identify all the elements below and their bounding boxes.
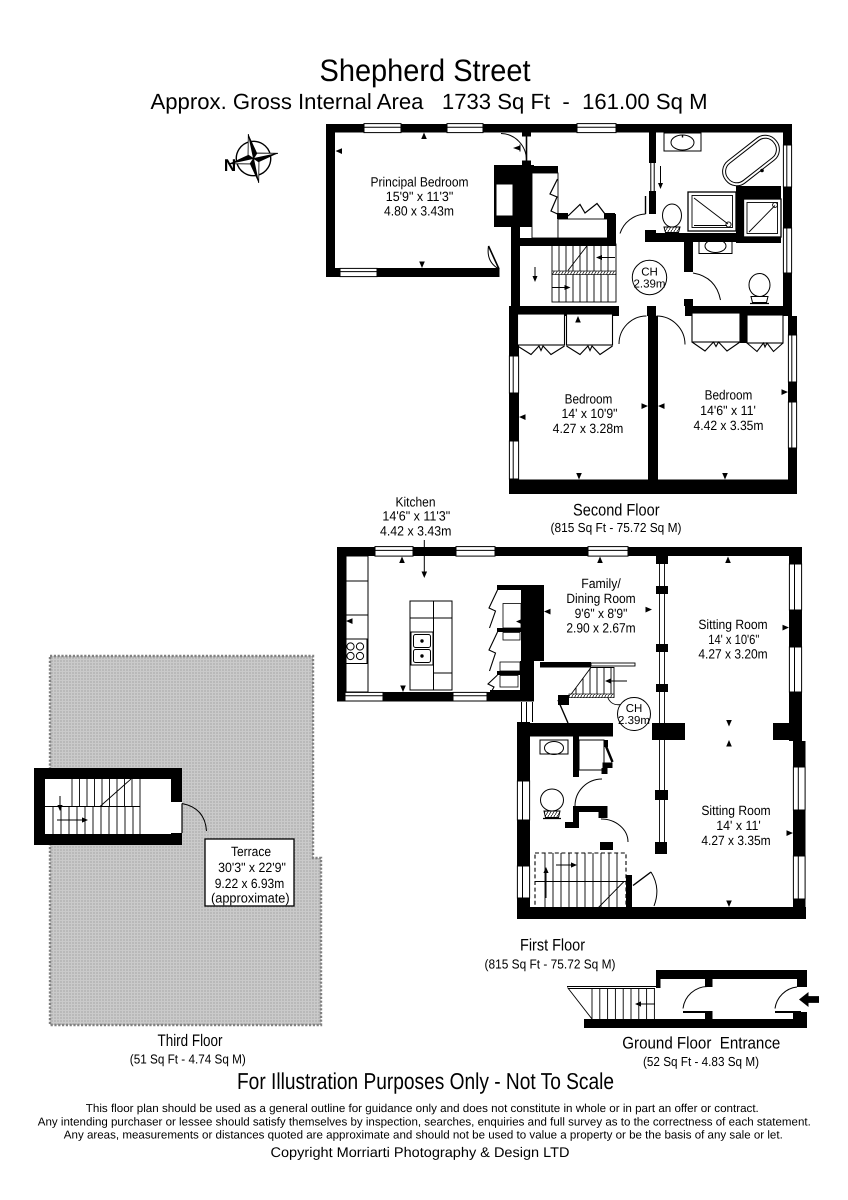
svg-text:For Illustration Purposes Only: For Illustration Purposes Only - Not To … [237, 1068, 614, 1094]
svg-text:Second Floor: Second Floor [573, 501, 660, 520]
svg-text:Principal Bedroom: Principal Bedroom [371, 175, 469, 190]
svg-text:Shepherd Street: Shepherd Street [320, 53, 531, 88]
svg-text:(approximate): (approximate) [211, 891, 290, 906]
svg-text:15'9" x 11'3": 15'9" x 11'3" [386, 189, 454, 204]
svg-text:Bedroom: Bedroom [705, 388, 753, 403]
svg-text:4.80 x 3.43m: 4.80 x 3.43m [384, 204, 454, 219]
svg-text:Third Floor: Third Floor [158, 1031, 223, 1050]
svg-text:2.90 x 2.67m: 2.90 x 2.67m [566, 621, 635, 636]
svg-text:9'6" x 8'9": 9'6" x 8'9" [575, 606, 628, 621]
svg-text:CH: CH [626, 703, 643, 715]
svg-text:Family/: Family/ [581, 576, 621, 591]
svg-text:4.42 x 3.43m: 4.42 x 3.43m [380, 524, 451, 539]
svg-text:14' x 11': 14' x 11' [716, 818, 761, 833]
svg-text:14'6" x 11'3": 14'6" x 11'3" [382, 509, 450, 524]
svg-text:(51 Sq Ft - 4.74 Sq M): (51 Sq Ft - 4.74 Sq M) [130, 1052, 246, 1067]
svg-text:Bedroom: Bedroom [565, 392, 613, 407]
svg-text:2.39m: 2.39m [634, 279, 666, 291]
svg-text:Dining Room: Dining Room [566, 591, 635, 606]
svg-text:(815 Sq Ft - 75.72 Sq M): (815 Sq Ft - 75.72 Sq M) [551, 520, 682, 535]
svg-text:CH: CH [641, 267, 658, 279]
svg-text:(815 Sq Ft - 75.72 Sq M): (815 Sq Ft - 75.72 Sq M) [485, 957, 616, 972]
svg-text:Copyright Morriarti Photograph: Copyright Morriarti Photography & Design… [271, 1144, 570, 1160]
svg-text:Sitting Room: Sitting Room [701, 803, 770, 818]
svg-text:30'3" x 22'9": 30'3" x 22'9" [218, 860, 286, 875]
svg-text:4.27 x 3.35m: 4.27 x 3.35m [701, 833, 770, 848]
svg-text:Kitchen: Kitchen [396, 495, 436, 510]
svg-text:14' x 10'6": 14' x 10'6" [708, 632, 759, 647]
svg-text:Any areas, measurements or dis: Any areas, measurements or distances quo… [64, 1130, 783, 1142]
svg-text:Ground Floor Entrance: Ground Floor Entrance [622, 1034, 780, 1053]
svg-text:9.22 x 6.93m: 9.22 x 6.93m [215, 876, 285, 891]
svg-text:Terrace: Terrace [231, 844, 271, 859]
svg-text:N: N [224, 156, 236, 175]
svg-text:First Floor: First Floor [520, 936, 585, 955]
svg-text:Sitting Room: Sitting Room [698, 617, 767, 632]
svg-text:14' x 10'9": 14' x 10'9" [562, 406, 618, 421]
svg-text:(52 Sq Ft - 4.83 Sq M): (52 Sq Ft - 4.83 Sq M) [643, 1054, 759, 1069]
svg-text:4.42 x 3.35m: 4.42 x 3.35m [694, 418, 764, 433]
svg-text:4.27 x 3.20m: 4.27 x 3.20m [698, 647, 767, 662]
svg-text:2.39m: 2.39m [618, 715, 650, 727]
svg-text:14'6" x 11': 14'6" x 11' [700, 403, 756, 418]
svg-text:Any intending purchaser or les: Any intending purchaser or lessee should… [38, 1117, 811, 1129]
svg-text:Approx. Gross Internal Area: Approx. Gross Internal Area 1733 Sq Ft -… [151, 89, 708, 114]
svg-text:This floor plan should be used: This floor plan should be used as a gene… [86, 1103, 759, 1115]
svg-text:4.27 x 3.28m: 4.27 x 3.28m [553, 421, 624, 436]
